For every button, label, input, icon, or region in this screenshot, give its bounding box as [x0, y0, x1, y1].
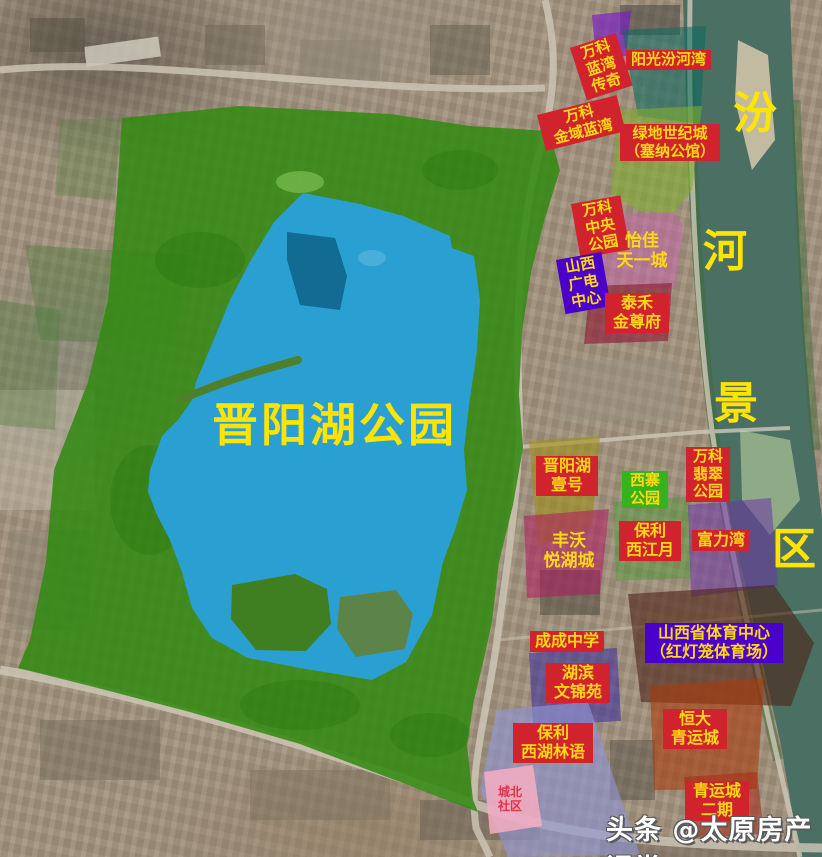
label-shanxi-tiyu-zhongxin: 山西省体育中心 （红灯笼体育场）	[645, 623, 783, 663]
label-taihe-jinzunfu: 泰禾 金尊府	[605, 293, 669, 333]
label-yangguang-fenhewan: 阳光汾河湾	[626, 50, 711, 70]
label-fuliwan: 富力湾	[692, 530, 750, 551]
watermark: 头条 @太原房产课堂	[606, 808, 822, 857]
label-lvdi-shijicheng: 绿地世纪城 （塞纳公馆）	[620, 124, 720, 161]
label-baoli-xijiangyue: 保利 西江月	[619, 521, 681, 561]
label-chengcheng-zhongxue: 成成中学	[530, 631, 604, 652]
river-char-qu: 区	[772, 528, 816, 572]
label-wanke-feicui-gongyuan: 万科 翡翠 公园	[686, 447, 730, 502]
satellite-map: 晋阳湖公园 汾 河 景 区 万科 蓝湾 传奇 阳光汾河湾 万科 金域蓝湾 绿地世…	[0, 0, 822, 857]
park-title: 晋阳湖公园	[212, 402, 457, 448]
label-chengbei-shequ: 城北 社区	[493, 785, 527, 813]
label-hubin-wenjinyuan: 湖滨 文锦苑	[546, 663, 610, 703]
label-yijia-tianyicheng: 怡佳 天一城	[613, 231, 671, 271]
river-char-he: 河	[703, 230, 747, 274]
river-char-jing: 景	[714, 382, 758, 426]
label-xizhai-gongyuan: 西寨 公园	[622, 471, 668, 508]
label-fengwo-yuehucheng: 丰沃 悦湖城	[541, 531, 597, 571]
label-hengda-qingyuncheng: 恒大 青运城	[663, 709, 727, 749]
label-shanxi-guangdian-zhongxin: 山西 广电 中心	[556, 252, 611, 314]
park-lawn	[276, 171, 324, 193]
lake-light-patch	[358, 250, 386, 266]
label-baoli-xihu-linyu: 保利 西湖林语	[513, 723, 593, 763]
label-jinyanghu-yihao: 晋阳湖 壹号	[536, 456, 598, 496]
river-char-fen: 汾	[733, 92, 777, 136]
